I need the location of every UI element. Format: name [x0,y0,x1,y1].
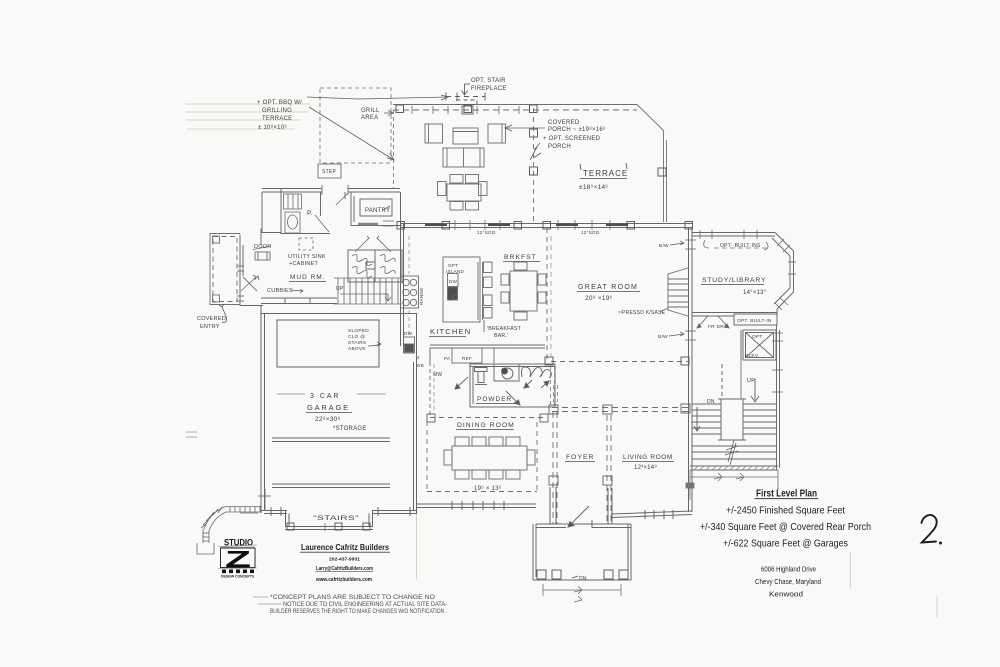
svg-text:*STORAGE: *STORAGE [333,426,367,432]
svg-text:www.cafritzbuilders.com: www.cafritzbuilders.com [315,577,372,583]
svg-text:FR DRS: FR DRS [708,324,727,330]
svg-text:SLOPED: SLOPED [348,328,369,334]
svg-text:B/W: B/W [659,243,669,249]
svg-text:FOYER: FOYER [566,454,594,461]
svg-text:GRILLING: GRILLING [262,108,292,114]
svg-text:TERRACE: TERRACE [583,169,628,178]
svg-text:STAIRS: STAIRS [348,340,366,346]
svg-text:OPT· BUILT·INS: OPT· BUILT·INS [720,243,761,249]
svg-text:UP: UP [336,286,344,292]
svg-text:P.: P. [307,210,313,217]
svg-text:CLG @: CLG @ [348,334,365,340]
svg-text:RANGE: RANGE [419,287,424,305]
svg-text:12°SGD: 12°SGD [477,230,496,235]
svg-text:4: 4 [417,355,420,360]
svg-text:+CABINET: +CABINET [289,261,318,267]
svg-text:ELEV.: ELEV. [745,353,759,359]
svg-text:ABOVE: ABOVE [348,346,366,352]
svg-text:*CONCEPT PLANS ARE SUBJECT TO: *CONCEPT PLANS ARE SUBJECT TO CHANGE NO [270,595,435,601]
svg-text:PA: PA [444,356,451,361]
svg-text:UP: UP [747,378,755,384]
svg-text:DN: DN [707,399,715,405]
svg-text:OPT: OPT [752,334,763,340]
svg-text:REF: REF [462,356,472,361]
svg-text:14°×13°: 14°×13° [743,290,767,296]
svg-text:BRKFST: BRKFST [504,254,537,261]
svg-text:Chevy Chase, Maryland: Chevy Chase, Maryland [755,579,821,586]
svg-text:GARAGE: GARAGE [307,403,350,412]
svg-text:TERRACE: TERRACE [262,116,292,122]
svg-text:Laurence Cafritz Builders: Laurence Cafritz Builders [301,542,389,552]
svg-text:+ OPT. SCREENED: + OPT. SCREENED [543,136,601,142]
svg-text:+ OPT. BBQ W/: + OPT. BBQ W/ [257,100,302,106]
svg-text:COVERED: COVERED [197,316,226,322]
svg-text:"STAIRS": "STAIRS" [313,515,360,522]
svg-text:PORCH ~ ±19⁸×16³: PORCH ~ ±19⁸×16³ [548,126,605,133]
svg-text:PANTRY: PANTRY [365,208,390,214]
svg-text:12³×14⁹: 12³×14⁹ [634,464,657,471]
svg-text:+/-622 Square Feet @ Garages: +/-622 Square Feet @ Garages [723,538,848,550]
svg-text:OPT: OPT [448,263,458,268]
svg-text:GRILL: GRILL [361,108,380,114]
svg-text:'BREAKFAST: 'BREAKFAST [487,326,522,332]
svg-text:DN: DN [579,576,587,582]
svg-text:MUD RM.: MUD RM. [290,274,326,281]
svg-text:ENTRY: ENTRY [200,324,220,330]
svg-text:COVERED: COVERED [548,120,580,126]
svg-text:BAR.': BAR.' [494,333,508,339]
svg-text:AREA: AREA [361,115,378,121]
svg-text:+/-2450 Finished Square Feet: +/-2450 Finished Square Feet [726,505,845,517]
svg-text:POWDER: POWDER [477,396,512,403]
svg-text:DW: DW [404,331,413,336]
svg-text:CUBBIES: CUBBIES [267,288,293,294]
svg-text:3 CAR: 3 CAR [310,393,341,400]
svg-text:UTILITY SINK: UTILITY SINK [288,254,326,260]
svg-text:202-437-9931: 202-437-9931 [329,557,360,562]
svg-text:NOTICE DUE TO CIVIL ENGINEERIN: NOTICE DUE TO CIVIL ENGINEERING AT ACTUA… [283,602,447,608]
svg-text:± 10⁸×10⁶: ± 10⁸×10⁶ [258,124,287,131]
svg-text:KITCHEN: KITCHEN [430,327,471,336]
svg-text:12°SGD: 12°SGD [581,230,600,235]
svg-text:Larry@CafritzBuilders.com: Larry@CafritzBuilders.com [316,566,373,572]
svg-text:DW: DW [449,279,458,284]
svg-text:Kenwood: Kenwood [769,592,803,599]
svg-text:6006 Highland Drive: 6006 Highland Drive [761,567,816,574]
svg-text:PORCH: PORCH [548,144,571,150]
svg-text:+/-340 Square Feet @ Covered R: +/-340 Square Feet @ Covered Rear Porch [700,521,871,533]
svg-text:STUDY/LIBRARY: STUDY/LIBRARY [702,277,766,284]
svg-text:STEP: STEP [322,169,336,175]
svg-text:FIREPLACE: FIREPLACE [471,86,507,92]
svg-text:B/W: B/W [658,334,668,340]
svg-text:22⁸×30⁸: 22⁸×30⁸ [315,416,341,423]
svg-text:19⁹ × 13⁶: 19⁹ × 13⁶ [474,485,502,492]
svg-text:DINING ROOM: DINING ROOM [457,422,515,429]
svg-text:OPT. STAIR: OPT. STAIR [471,78,506,84]
svg-text:PRESSD K/SASE: PRESSD K/SASE [622,310,666,316]
svg-text:DESIGN CONCEPTS: DESIGN CONCEPTS [221,575,255,579]
svg-text:ISLAND: ISLAND [446,269,465,274]
svg-text:GREAT ROOM: GREAT ROOM [578,284,638,291]
svg-text:BUILDER RESERVES THE RIGHT TO: BUILDER RESERVES THE RIGHT TO MAKE CHANG… [270,609,447,615]
svg-text:MW: MW [433,372,442,378]
svg-text:First Level Plan: First Level Plan [756,488,817,500]
svg-text:LIVING ROOM: LIVING ROOM [623,454,673,461]
svg-text:±18⁹×14³: ±18⁹×14³ [579,184,608,191]
svg-text:OPT. BUILT-IN: OPT. BUILT-IN [737,318,772,324]
svg-text:WB: WB [416,363,424,368]
svg-text:20⁹ ×19⁶: 20⁹ ×19⁶ [585,295,613,302]
